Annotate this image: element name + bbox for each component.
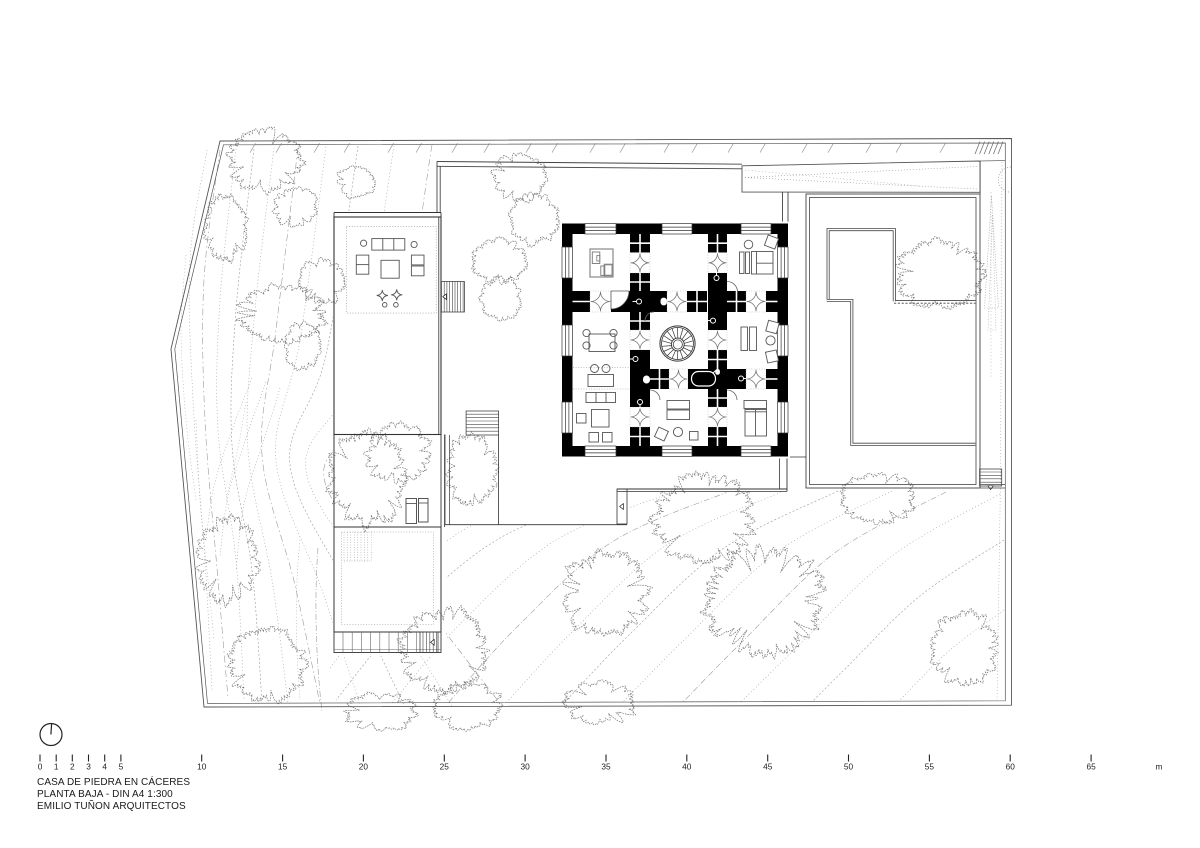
svg-text:40: 40 <box>682 762 692 772</box>
svg-text:65: 65 <box>1086 762 1096 772</box>
svg-text:PLANTA BAJA - DIN A4 1:300: PLANTA BAJA - DIN A4 1:300 <box>37 789 173 800</box>
svg-text:10: 10 <box>197 762 207 772</box>
svg-text:35: 35 <box>601 762 611 772</box>
svg-text:45: 45 <box>763 762 773 772</box>
svg-text:4: 4 <box>102 762 107 772</box>
svg-text:CASA DE PIEDRA EN CÁCERES: CASA DE PIEDRA EN CÁCERES <box>37 775 190 788</box>
svg-text:30: 30 <box>520 762 530 772</box>
svg-text:15: 15 <box>278 762 288 772</box>
svg-text:EMILIO TUÑON ARQUITECTOS: EMILIO TUÑON ARQUITECTOS <box>37 799 186 812</box>
svg-text:3: 3 <box>86 762 91 772</box>
svg-text:20: 20 <box>359 762 369 772</box>
svg-text:m: m <box>1156 762 1163 772</box>
svg-text:55: 55 <box>925 762 935 772</box>
svg-text:60: 60 <box>1006 762 1016 772</box>
svg-text:2: 2 <box>70 762 75 772</box>
svg-text:5: 5 <box>119 762 124 772</box>
svg-text:1: 1 <box>54 762 59 772</box>
svg-text:25: 25 <box>440 762 450 772</box>
svg-text:0: 0 <box>38 762 43 772</box>
svg-text:50: 50 <box>844 762 854 772</box>
